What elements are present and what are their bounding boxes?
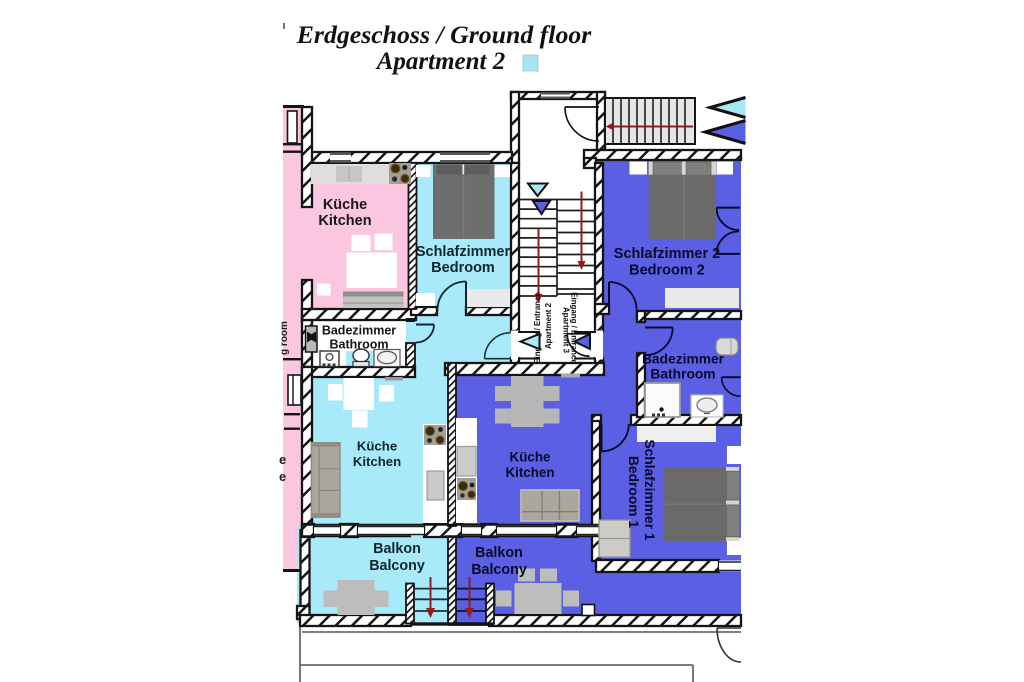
svg-text:Bathroom: Bathroom xyxy=(650,367,715,382)
svg-text:g room: g room xyxy=(279,321,290,355)
svg-text:Balcony: Balcony xyxy=(369,558,425,574)
svg-text:Bedroom: Bedroom xyxy=(431,260,495,276)
svg-text:Kitchen: Kitchen xyxy=(318,213,371,229)
svg-text:Erdgeschoss / Ground floor: Erdgeschoss / Ground floor xyxy=(296,20,593,49)
svg-text:Küche: Küche xyxy=(357,439,397,454)
svg-text:Badezimmer: Badezimmer xyxy=(322,324,396,338)
svg-text:Kitchen: Kitchen xyxy=(353,454,401,469)
svg-text:e: e xyxy=(279,452,286,467)
svg-text:Badezimmer: Badezimmer xyxy=(642,352,725,367)
svg-text:Balkon: Balkon xyxy=(373,541,421,557)
svg-text:Küche: Küche xyxy=(510,450,551,465)
svg-text:Kitchen: Kitchen xyxy=(505,465,554,480)
svg-text:Bathroom: Bathroom xyxy=(329,338,388,352)
svg-text:Balkon: Balkon xyxy=(475,545,523,561)
svg-text:e: e xyxy=(279,469,286,484)
svg-text:Schlafzimmer: Schlafzimmer xyxy=(416,244,511,260)
svg-text:Bedroom 1: Bedroom 1 xyxy=(626,456,641,528)
svg-text:Eingang / Entrance: Eingang / Entrance xyxy=(533,292,542,364)
svg-text:Apartment 3: Apartment 3 xyxy=(562,307,571,354)
svg-text:Schlafzimmer 1: Schlafzimmer 1 xyxy=(642,439,657,541)
svg-text:Apartment 2: Apartment 2 xyxy=(375,48,506,75)
svg-text:Bedroom 2: Bedroom 2 xyxy=(629,263,705,279)
svg-text:Küche: Küche xyxy=(323,197,367,213)
svg-text:Apartment 2: Apartment 2 xyxy=(544,302,553,349)
svg-text:Balcony: Balcony xyxy=(471,562,527,578)
svg-text:Schlafzimmer 2: Schlafzimmer 2 xyxy=(614,246,720,262)
